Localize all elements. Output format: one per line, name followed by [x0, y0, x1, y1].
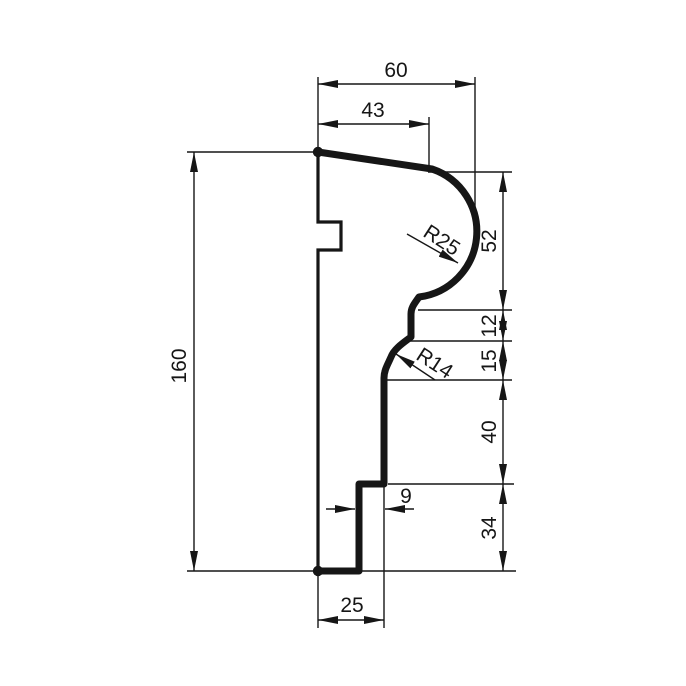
dim-label-base-width: 25 — [340, 594, 363, 617]
dimension-labels: 60 43 160 52 12 15 40 34 25 9 R25 R14 — [168, 59, 501, 617]
corner-point-bottom-left — [313, 566, 323, 576]
dim-label-crown-height: 52 — [478, 229, 501, 252]
dim-label-top-face: 43 — [361, 99, 384, 122]
dim-label-step-depth: 9 — [400, 485, 412, 508]
dimension-lines — [194, 84, 503, 620]
dim-label-base-height: 34 — [478, 516, 501, 540]
dim-label-fillet-height: 12 — [478, 314, 501, 337]
dim-label-cove-height: 15 — [478, 349, 501, 372]
technical-drawing-page: 60 43 160 52 12 15 40 34 25 9 R25 R14 — [0, 0, 686, 686]
corner-point-top-left — [313, 147, 323, 157]
radius-label-crown: R25 — [419, 220, 464, 260]
profile-drawing-svg: 60 43 160 52 12 15 40 34 25 9 R25 R14 — [0, 0, 686, 686]
dim-label-overall-width: 60 — [384, 59, 407, 82]
dim-label-overall-height: 160 — [168, 348, 191, 383]
profile-back-edge-with-groove — [318, 152, 341, 571]
radius-label-cove: R14 — [412, 343, 457, 383]
dim-label-web-height: 40 — [478, 420, 501, 443]
